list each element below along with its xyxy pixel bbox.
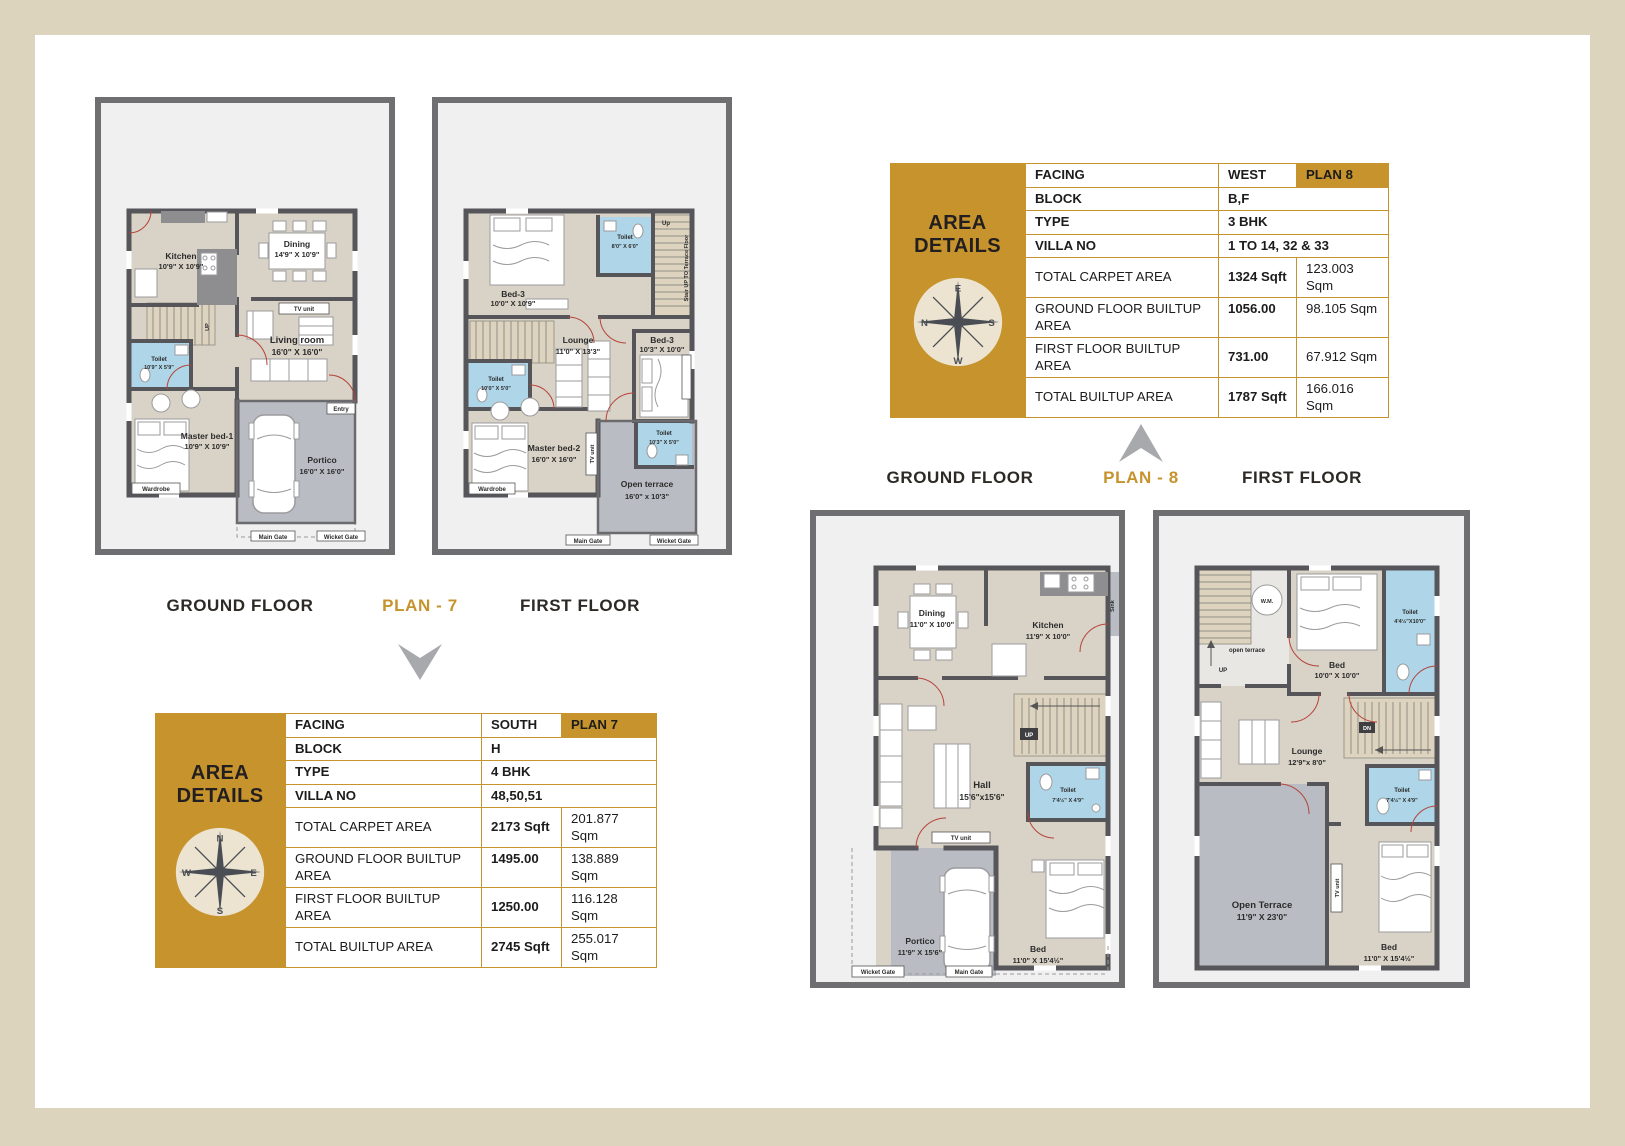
tv-unit-label: TV unit (294, 307, 314, 313)
living-room-label: Living room (270, 335, 324, 346)
bed-bottom-dims: 11'0" X 15'4½" (1364, 954, 1415, 963)
main-gate-label: Main Gate (259, 535, 288, 541)
type-value: 3 BHK (1219, 211, 1389, 235)
dn-label: DN (1363, 726, 1371, 732)
kitchen-dims: 11'9" X 10'0" (1026, 632, 1071, 641)
facing-value: WEST (1219, 164, 1297, 188)
stair-note-label: Stair UP TO Terrace Floor (684, 234, 690, 301)
total-builtup-sqft: 2745 Sqft (482, 928, 562, 968)
compass-icon: E S W N (910, 274, 1006, 370)
plan8-area-table: FACING WEST PLAN 8 BLOCK B,F TYPE 3 BHK … (1025, 163, 1389, 418)
gf-builtup-sqm: 138.889 Sqm (562, 848, 657, 888)
block-label: BLOCK (1026, 187, 1219, 211)
compass-left-letter: W (182, 867, 192, 878)
table-row: TOTAL BUILTUP AREA 2745 Sqft 255.017 Sqm (286, 928, 657, 968)
table-row: FACING SOUTH PLAN 7 (286, 714, 657, 738)
plan-badge: PLAN 8 (1297, 164, 1389, 188)
main-gate-label: Main Gate (955, 970, 984, 976)
bed-icon (135, 419, 189, 491)
bed-bottom-label: Bed (1381, 942, 1397, 952)
small-terrace-label: open terrace (1229, 648, 1266, 654)
villa-no-value: 1 TO 14, 32 & 33 (1219, 234, 1389, 258)
gf-builtup-sqft: 1056.00 (1219, 298, 1297, 338)
table-row: FIRST FLOOR BUILTUP AREA 1250.00 116.128… (286, 888, 657, 928)
toilet-mid-dims: 7'4½" X 4'9" (1386, 797, 1418, 804)
compass-top-letter: N (217, 833, 224, 844)
ff-builtup-label: FIRST FLOOR BUILTUP AREA (286, 888, 482, 928)
up-label: UP (1219, 668, 1227, 674)
portico-label: Portico (905, 936, 934, 946)
toilet-dims: 10'9" X 5'9" (144, 365, 174, 371)
toilet-br-label: Toilet (656, 431, 672, 437)
plan-badge: PLAN 7 (562, 714, 657, 738)
wardrobe-label: Wardrobe (478, 487, 506, 493)
plan8-area-details: AREA DETAILS E S W N FACING WEST PLAN 8 (890, 163, 1389, 418)
master-bed-label: Master bed-1 (181, 431, 234, 441)
ff-builtup-sqm: 116.128 Sqm (562, 888, 657, 928)
block-value: B,F (1219, 187, 1389, 211)
wicket-gate-label: Wicket Gate (324, 535, 359, 541)
bed-icon (1379, 842, 1431, 932)
sink-label: Sink (1110, 599, 1116, 612)
total-builtup-label: TOTAL BUILTUP AREA (286, 928, 482, 968)
toilet-left-label: Toilet (488, 377, 504, 383)
dining-label: Dining (919, 608, 945, 618)
up-label: UP (205, 323, 211, 331)
dining-dims: 14'9" X 10'9" (275, 250, 320, 259)
lounge-dims: 11'0" X 13'3" (556, 347, 601, 356)
kitchen-label: Kitchen (1032, 620, 1063, 630)
compass-icon: N E S W (172, 824, 268, 920)
toilet-dims: 8'0" X 6'0" (612, 244, 639, 250)
plan7-ground-floor-caption: GROUND FLOOR (150, 596, 330, 616)
bed-icon (472, 423, 528, 491)
bed3-right-dims: 10'3" X 10'0" (640, 345, 685, 354)
table-row: TOTAL CARPET AREA 2173 Sqft 201.877 Sqm (286, 808, 657, 848)
toilet-label: Toilet (617, 235, 633, 241)
lounge-dims: 12'9"x 8'0" (1288, 758, 1326, 767)
area-details-title: AREA DETAILS (165, 762, 275, 808)
type-value: 4 BHK (482, 761, 657, 785)
down-arrow-icon (398, 642, 442, 682)
portico-dims: 16'0" X 16'0" (300, 467, 345, 476)
toilet-label: Toilet (151, 357, 167, 363)
facing-value: SOUTH (482, 714, 562, 738)
table-row: VILLA NO 1 TO 14, 32 & 33 (1026, 234, 1389, 258)
table-row: TYPE 4 BHK (286, 761, 657, 785)
bed3-right-label: Bed-3 (650, 335, 674, 345)
total-builtup-sqm: 255.017 Sqm (562, 928, 657, 968)
open-terrace-label: Open Terrace (1232, 900, 1293, 911)
car-icon (249, 415, 299, 513)
type-label: TYPE (286, 761, 482, 785)
kitchen-dims: 10'9" X 10'9" (159, 262, 204, 271)
bed3-label: Bed-3 (501, 289, 525, 299)
open-terrace-area (1197, 784, 1327, 968)
toilet-top-dims: 4'4½"X10'0" (1394, 618, 1426, 625)
table-row: BLOCK H (286, 737, 657, 761)
brochure-page: { "colors":{"gold":"#c6932c","frame_beig… (0, 0, 1625, 1146)
plan7-caption: PLAN - 7 (360, 596, 480, 616)
dining-dims: 11'0" X 10'0" (910, 620, 955, 629)
villa-no-label: VILLA NO (1026, 234, 1219, 258)
carpet-area-sqm: 123.003 Sqm (1297, 258, 1389, 298)
bed-label: Bed (1030, 944, 1046, 954)
toilet-dims: 7'4½" X 4'9" (1052, 797, 1084, 804)
compass-right-letter: E (250, 867, 257, 878)
plan7-first-floor-drawing: TV unit Up Stair UP TO Terrace Floor Bed… (432, 97, 732, 555)
total-builtup-label: TOTAL BUILTUP AREA (1026, 378, 1219, 418)
toilet-top-label: Toilet (1402, 610, 1418, 616)
carpet-area-sqft: 2173 Sqft (482, 808, 562, 848)
plan7-area-details-header: AREA DETAILS N E S W (155, 713, 285, 968)
bed3-dims: 10'0" X 10'9" (491, 299, 536, 308)
compass-bottom-letter: W (953, 356, 963, 367)
block-label: BLOCK (286, 737, 482, 761)
block-value: H (482, 737, 657, 761)
wicket-gate-label: Wicket Gate (657, 539, 692, 545)
portico-dims: 11'9" X 15'6" (898, 948, 943, 957)
bed-icon (1297, 574, 1377, 650)
tv-unit-label: TV unit (951, 836, 971, 842)
total-builtup-sqft: 1787 Sqft (1219, 378, 1297, 418)
compass-bottom-letter: S (217, 906, 224, 917)
plan8-first-floor-caption: FIRST FLOOR (1222, 468, 1382, 488)
plan7-area-details: AREA DETAILS N E S W FACING SOUTH PLAN 7 (155, 713, 657, 968)
gf-builtup-label: GROUND FLOOR BUILTUP AREA (1026, 298, 1219, 338)
living-room-dims: 16'0" X 16'0" (272, 347, 323, 357)
plan8-ground-floor-drawing: UP Sink Dining 11'0" X 10'0" Kitchen 11'… (810, 510, 1125, 988)
gf-builtup-label: GROUND FLOOR BUILTUP AREA (286, 848, 482, 888)
table-row: TOTAL BUILTUP AREA 1787 Sqft 166.016 Sqm (1026, 378, 1389, 418)
plan8-first-floor-drawing: W.M. UP open terrace DN TV unit Bed 10'0… (1153, 510, 1470, 988)
compass-top-letter: E (954, 283, 961, 294)
stairs-icon (1014, 694, 1108, 756)
master-bed2-dims: 16'0" X 16'0" (532, 455, 577, 464)
open-terrace-dims: 11'9" X 23'0" (1237, 912, 1287, 922)
dining-label: Dining (284, 239, 310, 249)
lounge-label: Lounge (1292, 746, 1323, 756)
toilet-area (1384, 568, 1437, 694)
table-row: GROUND FLOOR BUILTUP AREA 1495.00 138.88… (286, 848, 657, 888)
portico-label: Portico (307, 455, 336, 465)
table-row: TOTAL CARPET AREA 1324 Sqft 123.003 Sqm (1026, 258, 1389, 298)
ff-builtup-sqft: 1250.00 (482, 888, 562, 928)
wicket-gate-label: Wicket Gate (861, 970, 896, 976)
toilet-label: Toilet (1060, 788, 1076, 794)
tv-unit-label: TV unit (590, 445, 596, 464)
plan8-caption: PLAN - 8 (1081, 468, 1201, 488)
bed-icon (640, 355, 688, 417)
table-row: GROUND FLOOR BUILTUP AREA 1056.00 98.105… (1026, 298, 1389, 338)
ff-builtup-sqm: 67.912 Sqm (1297, 338, 1389, 378)
area-details-title: AREA DETAILS (903, 212, 1013, 258)
bed-top-label: Bed (1329, 660, 1345, 670)
facing-label: FACING (286, 714, 482, 738)
wm-label: W.M. (1261, 599, 1274, 605)
bed-top-dims: 10'0" X 10'0" (1315, 671, 1360, 680)
open-terrace-label: Open terrace (621, 479, 674, 489)
kitchen-label: Kitchen (165, 251, 196, 261)
hall-label: Hall (973, 780, 990, 791)
table-row: TYPE 3 BHK (1026, 211, 1389, 235)
carpet-area-sqm: 201.877 Sqm (562, 808, 657, 848)
compass-left-letter: N (920, 317, 927, 328)
hall-dims: 15'6"x15'6" (959, 792, 1004, 802)
master-bed-dims: 10'9" X 10'9" (185, 442, 230, 451)
gf-builtup-sqft: 1495.00 (482, 848, 562, 888)
open-terrace-dims: 16'0" x 10'3" (625, 492, 669, 501)
carpet-area-sqft: 1324 Sqft (1219, 258, 1297, 298)
plan8-area-details-header: AREA DETAILS E S W N (890, 163, 1025, 418)
up-arrow-icon (1119, 424, 1163, 464)
up-label: Up (662, 221, 670, 227)
gf-builtup-sqm: 98.105 Sqm (1297, 298, 1389, 338)
table-row: FIRST FLOOR BUILTUP AREA 731.00 67.912 S… (1026, 338, 1389, 378)
toilet-br-dims: 10'3" X 5'0" (649, 440, 679, 446)
villa-no-value: 48,50,51 (482, 784, 657, 808)
type-label: TYPE (1026, 211, 1219, 235)
plan8-ground-floor-caption: GROUND FLOOR (870, 468, 1050, 488)
table-row: BLOCK B,F (1026, 187, 1389, 211)
main-gate-label: Main Gate (574, 539, 603, 545)
carpet-area-label: TOTAL CARPET AREA (1026, 258, 1219, 298)
bed-dims: 11'0" X 15'4½" (1013, 956, 1064, 965)
compass-right-letter: S (988, 317, 995, 328)
plan7-first-floor-caption: FIRST FLOOR (500, 596, 660, 616)
toilet-left-dims: 10'0" X 5'0" (481, 386, 511, 392)
ff-builtup-label: FIRST FLOOR BUILTUP AREA (1026, 338, 1219, 378)
tv-unit-tag (682, 355, 691, 399)
up-label: UP (1025, 733, 1033, 739)
wardrobe-label: Wardrobe (142, 487, 170, 493)
plan7-ground-floor-drawing: TV unit Entry Wardrobe UP Kitchen 10'9" … (95, 97, 395, 555)
master-bed2-label: Master bed-2 (528, 443, 581, 453)
carpet-area-label: TOTAL CARPET AREA (286, 808, 482, 848)
villa-no-label: VILLA NO (286, 784, 482, 808)
table-row: VILLA NO 48,50,51 (286, 784, 657, 808)
total-builtup-sqm: 166.016 Sqm (1297, 378, 1389, 418)
table-row: FACING WEST PLAN 8 (1026, 164, 1389, 188)
plan7-area-table: FACING SOUTH PLAN 7 BLOCK H TYPE 4 BHK V… (285, 713, 657, 968)
lounge-label: Lounge (563, 335, 594, 345)
ff-builtup-sqft: 731.00 (1219, 338, 1297, 378)
tv-unit-label: TV unit (1335, 879, 1341, 898)
car-icon (940, 868, 994, 972)
entry-label: Entry (333, 407, 349, 413)
facing-label: FACING (1026, 164, 1219, 188)
toilet-mid-label: Toilet (1394, 788, 1410, 794)
